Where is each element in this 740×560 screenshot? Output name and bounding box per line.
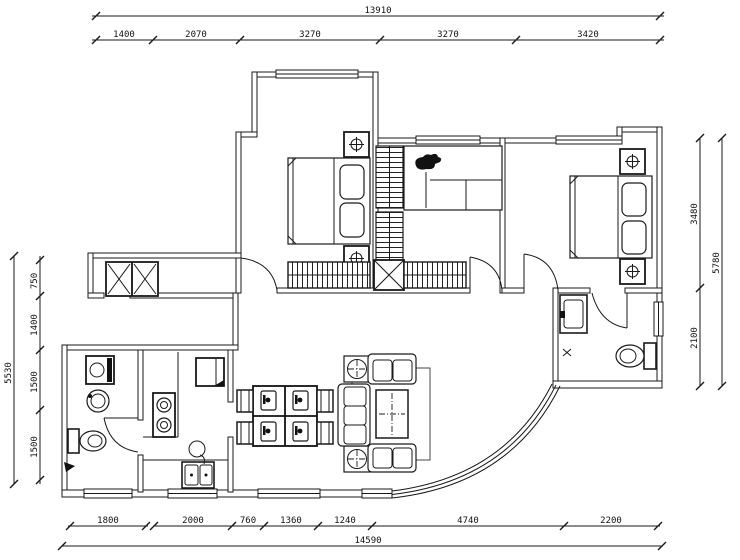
dimension-bottom: 1800 2000 760 1360 1240 4740 2200 14590 [58, 516, 666, 550]
dimension-right: 3480 2100 5780 [690, 134, 726, 390]
study-room [374, 146, 502, 290]
wall [228, 350, 233, 402]
right-bedroom [570, 149, 652, 284]
wall [88, 253, 93, 298]
dining-set [237, 386, 333, 446]
dim-top-seg-1: 1400 [113, 30, 135, 40]
wall [617, 127, 662, 132]
nightstand [344, 132, 369, 157]
shaft-x-box [374, 260, 404, 290]
dim-right-total: 5780 [712, 252, 722, 274]
stove [153, 393, 175, 437]
kitchen [143, 352, 228, 488]
sofa-two-seat [368, 444, 416, 472]
window [416, 136, 480, 144]
wall [88, 253, 241, 258]
wall [62, 345, 67, 497]
dimension-left: 5530 750 1400 1500 1500 [4, 252, 44, 488]
desk [404, 146, 502, 210]
door-study [470, 257, 502, 290]
wall [233, 293, 238, 350]
toilet [68, 429, 106, 453]
dim-top-total: 13910 [364, 6, 391, 16]
dining-chair [317, 422, 333, 444]
window [168, 489, 217, 498]
window [276, 70, 358, 78]
dim-right-seg-2: 2100 [690, 327, 700, 349]
toilet [616, 343, 656, 369]
left-bathroom [64, 356, 114, 472]
floor-plan-drawing: 13910 1400 2070 3270 3270 3420 1800 2000… [0, 0, 740, 560]
dim-bottom-seg-7: 2200 [600, 516, 622, 526]
wall [62, 345, 238, 350]
dimension-top: 13910 1400 2070 3270 3270 3420 [92, 6, 664, 44]
double-bed [570, 176, 652, 258]
coffee-table [376, 390, 408, 438]
dim-left-seg-3: 1500 [30, 371, 40, 393]
nightstand [620, 149, 645, 174]
dim-bottom-seg-2: 2000 [182, 516, 204, 526]
window [84, 489, 132, 498]
dim-left-seg-1: 750 [30, 273, 40, 289]
wash-basin [560, 295, 587, 333]
bay-window-curve [392, 384, 560, 498]
door-right-bathroom [592, 293, 627, 328]
side-table [344, 356, 370, 382]
wall [138, 455, 143, 492]
door-master-bedroom [241, 258, 277, 290]
wardrobe [404, 262, 466, 288]
place-setting [261, 422, 276, 441]
dim-top-seg-3: 3270 [299, 30, 321, 40]
dim-left-seg-2: 1400 [30, 314, 40, 336]
refrigerator [196, 358, 224, 386]
wall [553, 288, 558, 383]
master-bedroom [288, 132, 370, 288]
door-right-bedroom [524, 254, 558, 290]
sofa-set [338, 354, 430, 472]
dim-left-seg-4: 1500 [30, 436, 40, 458]
dim-right-seg-1: 3480 [690, 203, 700, 225]
dim-top-seg-2: 2070 [185, 30, 207, 40]
sofa-three-seat [338, 384, 370, 446]
double-bed [288, 158, 370, 244]
wardrobe [288, 262, 370, 288]
floor-drain-icon [563, 349, 571, 356]
kitchen-sink [182, 441, 214, 488]
dim-top-seg-4: 3270 [437, 30, 459, 40]
dim-left-total: 5530 [4, 362, 14, 384]
loveseat [368, 354, 416, 384]
wall [236, 132, 241, 293]
door-left-bathroom [104, 418, 138, 452]
wall [657, 127, 662, 386]
wall [502, 288, 524, 293]
wall [558, 288, 590, 293]
window [362, 489, 392, 498]
wall [625, 288, 662, 293]
right-bathroom [560, 295, 656, 369]
dim-bottom-seg-6: 4740 [457, 516, 479, 526]
dim-bottom-seg-1: 1800 [97, 516, 119, 526]
elevator-shaft [106, 262, 158, 296]
bookshelf [376, 146, 403, 260]
floor-plan-canvas: 13910 1400 2070 3270 3270 3420 1800 2000… [0, 0, 740, 560]
dim-bottom-seg-5: 1240 [334, 516, 356, 526]
dining-chair [317, 390, 333, 412]
wall [138, 350, 143, 420]
round-basin [87, 390, 109, 412]
nightstand [620, 259, 645, 284]
dim-bottom-seg-3: 760 [240, 516, 256, 526]
window [654, 302, 663, 336]
wall [553, 381, 662, 388]
place-setting [293, 422, 308, 441]
wall [88, 293, 104, 298]
dining-chair [237, 390, 253, 412]
place-setting [293, 391, 308, 410]
dim-bottom-total: 14590 [354, 536, 381, 546]
place-setting [261, 391, 276, 410]
washing-machine [86, 356, 114, 384]
window [556, 136, 622, 144]
window [258, 489, 320, 498]
dining-chair [237, 422, 253, 444]
wall [228, 437, 233, 492]
side-table [344, 446, 370, 472]
dim-bottom-seg-4: 1360 [280, 516, 302, 526]
wall [252, 72, 257, 137]
dim-top-seg-5: 3420 [577, 30, 599, 40]
